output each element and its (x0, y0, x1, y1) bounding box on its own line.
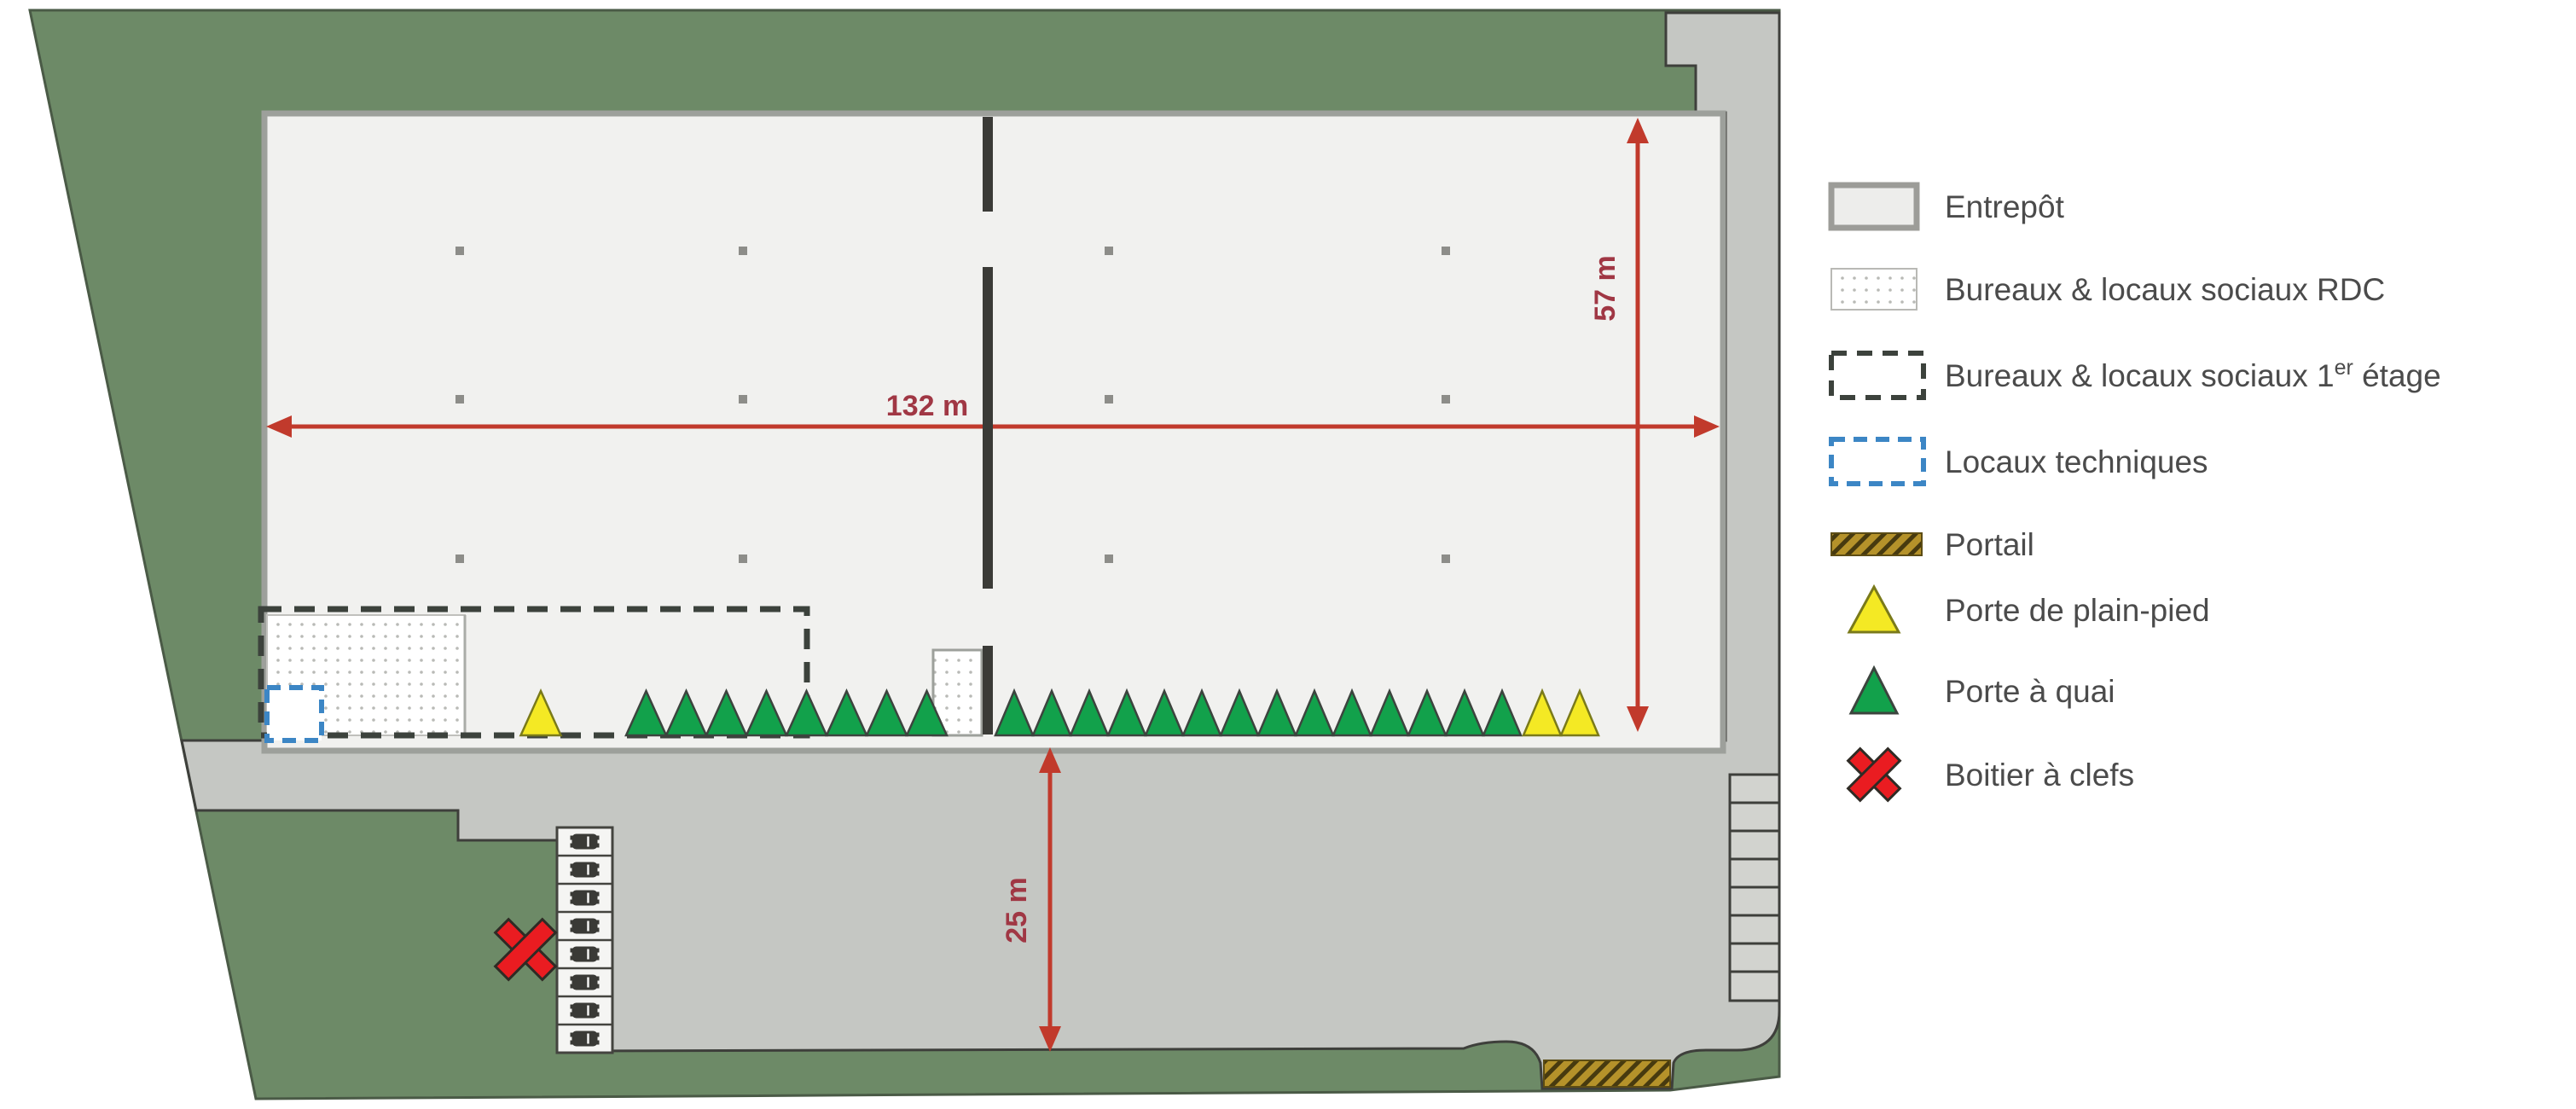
car-icon (571, 891, 600, 906)
legend-item-entrepot: Entrepôt (1831, 185, 2065, 228)
car-wheel (571, 928, 575, 932)
car-wheel (571, 984, 575, 989)
car-icon (571, 975, 600, 990)
site-plan-page: 132 m 57 m 25 m EntrepôtBureaux & locaux… (0, 0, 2576, 1109)
column-dot (1105, 395, 1113, 404)
car-wheel (595, 864, 600, 868)
car-wheel (595, 892, 600, 897)
car-wheel (595, 920, 600, 925)
car-wheel (595, 836, 600, 840)
car-icon (571, 1031, 600, 1047)
legend-item-portail: Portail (1831, 527, 2034, 562)
legend-label: Bureaux & locaux sociaux 1er étage (1945, 356, 2441, 393)
car-wheel (595, 949, 600, 953)
car-wheel (595, 872, 600, 876)
legend-item-bureaux-rdc: Bureaux & locaux sociaux RDC (1831, 269, 2385, 310)
dimension-label-25m: 25 m (1001, 877, 1033, 944)
car-wheel (571, 892, 575, 897)
car-wheel (571, 977, 575, 981)
legend-item-locaux-techniques: Locaux techniques (1831, 439, 2208, 484)
warehouse-building (264, 113, 1723, 751)
car-body (572, 919, 598, 934)
column-dot (1105, 554, 1113, 563)
car-body (572, 862, 598, 878)
car-wheel (571, 1041, 575, 1045)
car-wheel (571, 1033, 575, 1037)
dock-stairs (1730, 775, 1779, 1001)
technical-room-outline (267, 688, 322, 740)
legend-label: Portail (1945, 527, 2034, 562)
car-wheel (595, 844, 600, 848)
legend-item-boitier-a-clefs: Boitier à clefs (1848, 749, 2134, 801)
legend: EntrepôtBureaux & locaux sociaux RDCBure… (1831, 185, 2441, 800)
car-wheel (571, 1005, 575, 1009)
car-wheel (595, 984, 600, 989)
dimension-label-132m: 132 m (886, 390, 968, 422)
legend-label: Boitier à clefs (1945, 758, 2134, 793)
car-body (572, 975, 598, 990)
legend-swatch-offices-rdc (1831, 269, 1917, 310)
legend-item-bureaux-1er-etage: Bureaux & locaux sociaux 1er étage (1831, 353, 2441, 398)
car-wheel (595, 928, 600, 932)
car-wheel (571, 864, 575, 868)
car-wheel (595, 900, 600, 904)
column-dot (739, 247, 747, 255)
legend-item-porte-plain-pied: Porte de plain-pied (1849, 587, 2210, 632)
legend-swatch-offices-first-floor (1831, 353, 1923, 398)
car-wheel (571, 844, 575, 848)
legend-item-porte-a-quai: Porte à quai (1851, 668, 2115, 713)
column-dot (455, 554, 464, 563)
car-wheel (571, 872, 575, 876)
legend-swatch-warehouse (1831, 185, 1917, 228)
site-plan: 132 m 57 m 25 m EntrepôtBureaux & locaux… (0, 0, 2576, 1109)
car-wheel (595, 1033, 600, 1037)
legend-label: Porte à quai (1945, 674, 2115, 709)
car-body (572, 834, 598, 850)
car-wheel (595, 1005, 600, 1009)
car-body (572, 1031, 598, 1047)
car-icon (571, 834, 600, 850)
column-dot (1442, 247, 1450, 255)
car-wheel (595, 1013, 600, 1017)
car-icon (571, 862, 600, 878)
column-dot (455, 395, 464, 404)
car-body (572, 891, 598, 906)
car-body (572, 1003, 598, 1019)
column-dot (455, 247, 464, 255)
dimension-label-57m: 57 m (1589, 255, 1622, 322)
legend-pedestrian-door-icon (1849, 587, 1899, 632)
car-wheel (571, 920, 575, 925)
legend-label: Bureaux & locaux sociaux RDC (1945, 272, 2385, 307)
legend-swatch-gate (1831, 533, 1922, 555)
column-dot (739, 554, 747, 563)
column-dot (1105, 247, 1113, 255)
car-wheel (571, 900, 575, 904)
column-dot (739, 395, 747, 404)
car-wheel (595, 977, 600, 981)
gate-portail (1544, 1060, 1670, 1087)
car-wheel (571, 1013, 575, 1017)
legend-key-box-icon (1848, 749, 1900, 801)
column-dot (1442, 395, 1450, 404)
legend-dock-door-icon (1851, 668, 1897, 713)
legend-label: Locaux techniques (1945, 444, 2208, 479)
car-body (572, 947, 598, 962)
car-icon (571, 919, 600, 934)
car-wheel (571, 836, 575, 840)
legend-label: Entrepôt (1945, 189, 2065, 224)
legend-swatch-technical-room (1831, 439, 1923, 484)
column-dot (1442, 554, 1450, 563)
car-wheel (571, 956, 575, 961)
car-icon (571, 1003, 600, 1019)
car-wheel (571, 949, 575, 953)
car-wheel (595, 956, 600, 961)
legend-label: Porte de plain-pied (1945, 593, 2210, 628)
car-icon (571, 947, 600, 962)
parking-row (557, 827, 612, 1053)
car-wheel (595, 1041, 600, 1045)
